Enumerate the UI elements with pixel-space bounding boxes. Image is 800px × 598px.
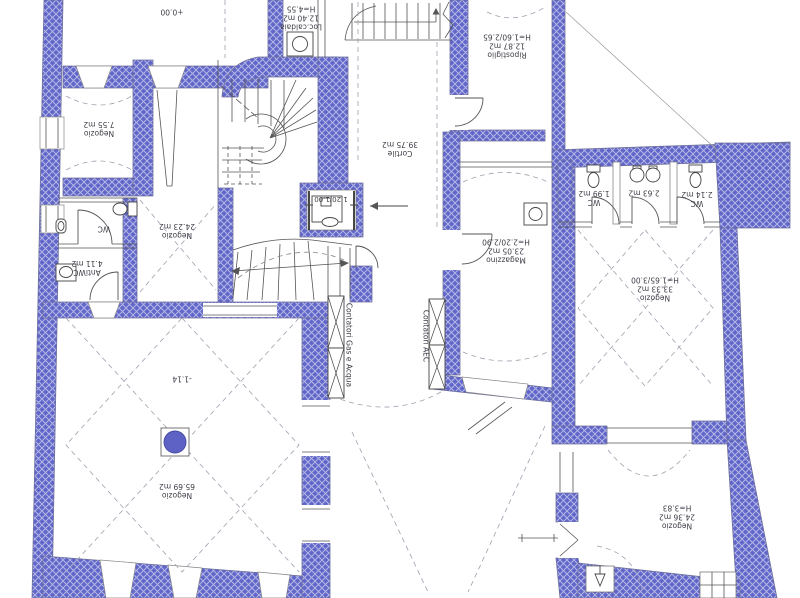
room-area: 24.23 m2 bbox=[159, 221, 195, 230]
elevator-size-label: 1.20/1.00 bbox=[314, 195, 348, 203]
label-cortile: Cortile39.75 m2 bbox=[382, 139, 418, 157]
label-antiwc-263: 2.63 m2 bbox=[628, 188, 659, 197]
label-wc-left: WC bbox=[98, 224, 111, 233]
room-area: 39.75 m2 bbox=[382, 139, 418, 148]
label-loc-caldaia: Loc.caldaia12.40 m2H=4.55 bbox=[280, 4, 322, 31]
room-name: Negozio bbox=[159, 230, 195, 239]
room-area: 24.36 m2 bbox=[659, 512, 695, 521]
room-name: Negozio bbox=[659, 520, 695, 529]
label-negozio-6569: Negozio65.69 m2 bbox=[159, 481, 195, 499]
room-area: 1.99 m2 bbox=[578, 188, 609, 197]
room-name: Negozio bbox=[159, 490, 195, 499]
sink-icon bbox=[630, 166, 644, 182]
toilet-icon bbox=[689, 165, 702, 188]
room-name: Loc.caldaia bbox=[280, 21, 322, 30]
meter-label-aec: Contatori AEC bbox=[421, 310, 430, 362]
toilet-icon bbox=[587, 165, 600, 188]
room-height: H=1.65/3.00 bbox=[631, 275, 679, 284]
room-name: Ripostiglio bbox=[483, 49, 531, 58]
meter-label-gas-water: Contatori Gas e Acqua bbox=[344, 303, 353, 387]
room-height: H=4.55 bbox=[280, 4, 322, 13]
room-height: H=1.60/2.65 bbox=[483, 32, 531, 41]
room-height: H=2.20/2.90 bbox=[482, 237, 530, 246]
room-name: Negozio bbox=[83, 128, 114, 137]
label-antiwc: AntiWC4.11 m2 bbox=[71, 258, 102, 276]
room-area: 7.55 m2 bbox=[83, 119, 114, 128]
room-area: 65.69 m2 bbox=[159, 481, 195, 490]
room-name: WC bbox=[681, 198, 712, 207]
room-name: WC bbox=[578, 197, 609, 206]
room-area: 12.87 m2 bbox=[483, 41, 531, 50]
room-area: 33.33 m2 bbox=[631, 284, 679, 293]
label-wc-199: WC1.99 m2 bbox=[578, 188, 609, 206]
label-negozio-2436: Negozio24.36 m2H=3.83 bbox=[659, 503, 695, 530]
column bbox=[161, 428, 189, 456]
label-negozio-755: Negozio7.55 m2 bbox=[83, 119, 114, 137]
label-ripostiglio: Ripostiglio12.87 m2H=1.60/2.65 bbox=[483, 32, 531, 59]
meter-cabinet-aec bbox=[429, 299, 445, 389]
level-marker-lower: -1.14 bbox=[172, 374, 191, 383]
room-height: H=3.83 bbox=[659, 503, 695, 512]
room-area: 2.63 m2 bbox=[628, 188, 659, 197]
room-name: Magazzino bbox=[482, 254, 530, 263]
room-name: AntiWC bbox=[71, 267, 102, 276]
room-area: 23.05 m2 bbox=[482, 246, 530, 255]
sink-icon bbox=[646, 166, 660, 182]
boiler-icon bbox=[287, 32, 313, 56]
label-negozio-2423: Negozio24.23 m2 bbox=[159, 221, 195, 239]
bidet-icon bbox=[56, 219, 66, 233]
room-area: 4.11 m2 bbox=[71, 258, 102, 267]
meter-cabinet-gas bbox=[328, 296, 344, 398]
room-area: 2.14 m2 bbox=[681, 189, 712, 198]
level-marker-upper: +0.00 bbox=[161, 7, 184, 16]
label-magazzino: Magazzino23.05 m2H=2.20/2.90 bbox=[482, 237, 530, 264]
label-negozio-3333: Negozio33.33 m2H=1.65/3.00 bbox=[631, 275, 679, 302]
room-area: 12.40 m2 bbox=[280, 13, 322, 22]
floor-plan: +0.00 Loc.caldaia12.40 m2H=4.55 Negozio7… bbox=[0, 0, 800, 598]
dashed-lines bbox=[66, 0, 713, 594]
room-name: Cortile bbox=[382, 148, 418, 157]
doors bbox=[58, 98, 720, 300]
appliance-icon bbox=[524, 203, 547, 225]
label-wc-214: WC2.14 m2 bbox=[681, 189, 712, 207]
room-name: Negozio bbox=[631, 292, 679, 301]
room-name: WC bbox=[98, 224, 111, 233]
